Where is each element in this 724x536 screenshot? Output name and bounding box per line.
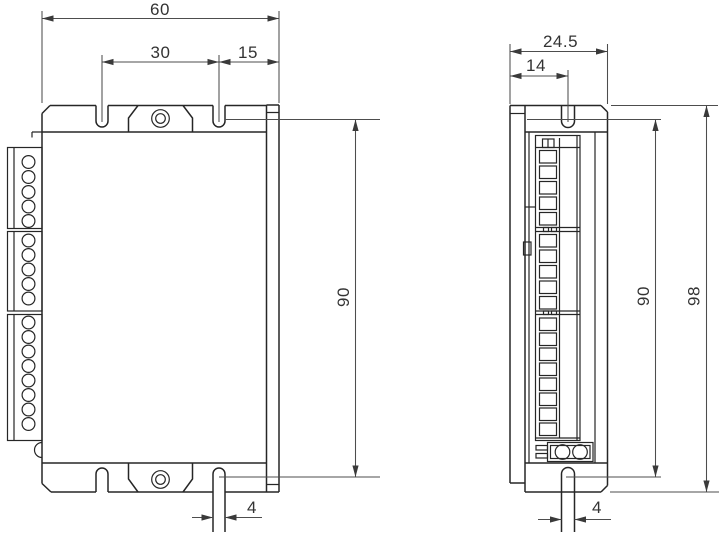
side-terminal-block-2 xyxy=(540,235,557,310)
front-dim-slot-edge-label: 15 xyxy=(238,43,258,62)
front-dim-mount-height-label: 90 xyxy=(334,287,353,307)
front-dim-slot-spacing-label: 30 xyxy=(151,43,171,62)
connector-block-2 xyxy=(8,232,43,312)
front-connector-blocks xyxy=(8,148,43,441)
front-dimensions: 60 30 15 90 4 xyxy=(42,0,380,521)
technical-drawing-canvas: 60 30 15 90 4 xyxy=(0,0,724,536)
dimension-drawing-svg: 60 30 15 90 4 xyxy=(0,0,724,536)
side-view: 24.5 14 90 98 4 xyxy=(510,32,719,532)
front-screw-hole-top xyxy=(152,110,170,128)
side-dim-slot-width-label: 4 xyxy=(592,498,602,517)
side-dim-offset-label: 14 xyxy=(526,56,546,75)
front-mounting-slots xyxy=(96,106,225,533)
front-side-plate xyxy=(267,105,280,492)
front-slot-bottom-right xyxy=(213,468,225,474)
front-screw-hole-bottom xyxy=(152,471,170,489)
side-dim-depth-label: 24.5 xyxy=(543,32,578,51)
front-screw-bosses xyxy=(129,106,193,493)
side-dim-overall-height-label: 98 xyxy=(685,286,704,306)
side-terminal-block-3 xyxy=(540,318,557,436)
side-terminal-stack xyxy=(524,136,594,462)
connector-block-3 xyxy=(8,315,43,441)
side-terminal-block-1 xyxy=(540,151,557,226)
front-dim-slot-width-label: 4 xyxy=(247,498,257,517)
front-dim-width-label: 60 xyxy=(150,0,170,19)
side-mounting-slots xyxy=(562,106,575,533)
front-slot-bottom-left xyxy=(96,468,108,492)
front-bottom-notch xyxy=(35,443,42,458)
front-enclosure-outline xyxy=(32,106,267,493)
front-view: 60 30 15 90 4 xyxy=(8,0,381,532)
connector-block-1 xyxy=(8,148,43,229)
side-bottom-connector xyxy=(536,443,593,462)
side-slot-bottom xyxy=(562,468,575,474)
side-dim-mount-height-label: 90 xyxy=(634,286,653,306)
side-enclosure-outline xyxy=(510,106,608,493)
